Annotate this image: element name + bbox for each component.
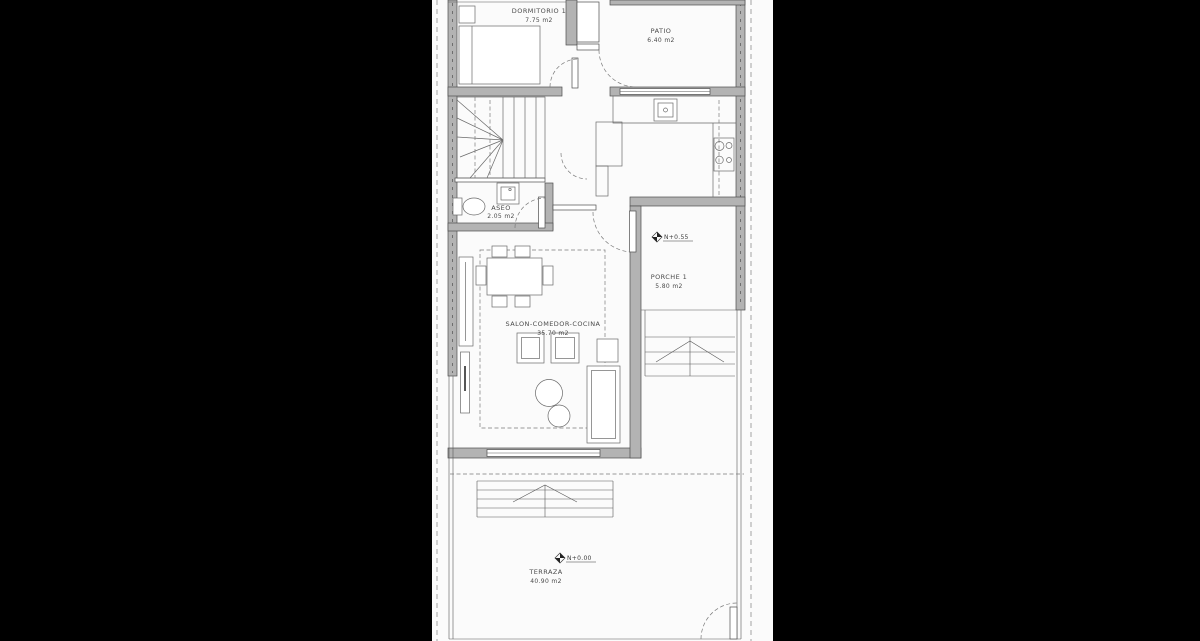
pouf-icon [536, 380, 563, 407]
room-area-dormitorio: 7.75 m2 [525, 17, 552, 24]
screenshot-stage: N+0.55 N+0.00 DORMITORIO 1 7.75 m2 PATIO… [0, 0, 1200, 641]
bed-icon [459, 26, 540, 84]
room-area-salon: 35.70 m2 [537, 330, 569, 337]
room-area-terraza: 40.90 m2 [530, 578, 562, 585]
tall-window-unit [459, 257, 473, 346]
room-label-terraza: TERRAZA [528, 568, 562, 576]
entrance-door-leaf [630, 211, 637, 252]
room-area-porche: 5.80 m2 [655, 283, 682, 290]
pouf-icon [548, 405, 570, 427]
wall-dormitorio-south [448, 87, 562, 96]
level-label: N+0.00 [567, 555, 592, 562]
sink-icon [497, 183, 519, 204]
wall-patio-door-stub [577, 44, 599, 50]
wall-patio-north [610, 0, 745, 5]
level-label: N+0.55 [664, 234, 689, 241]
floorplan-svg: N+0.55 N+0.00 DORMITORIO 1 7.75 m2 PATIO… [0, 0, 1200, 641]
tall-window-unit [461, 352, 470, 413]
room-area-patio: 6.40 m2 [647, 37, 674, 44]
armchair-icon [517, 333, 544, 363]
room-label-aseo: ASEO [491, 204, 511, 212]
aseo-door-leaf [539, 197, 546, 228]
room-area-aseo: 2.05 m2 [487, 213, 514, 220]
room-label-salon: SALON-COMEDOR-COCINA [506, 320, 601, 328]
letterbox-right [773, 0, 1200, 641]
letterbox-left [0, 0, 432, 641]
toilet-icon [453, 198, 485, 215]
sofa-icon [587, 366, 620, 443]
nightstand-icon [459, 6, 475, 23]
side-table-icon [597, 339, 618, 362]
kitchen-sink-icon [654, 99, 677, 121]
room-label-patio: PATIO [651, 27, 672, 35]
wall-kitchen-south [630, 197, 745, 206]
wall-entry-stub [553, 205, 596, 210]
level-marker-porche: N+0.55 [652, 232, 693, 242]
level-marker-terraza: N+0.00 [555, 553, 596, 563]
wall-hall-north [566, 0, 577, 45]
armchair-icon [551, 333, 579, 363]
room-label-porche: PORCHE 1 [651, 273, 688, 281]
room-label-dormitorio: DORMITORIO 1 [512, 7, 566, 15]
closet [577, 2, 599, 42]
gate-leaf [730, 607, 737, 639]
wall-aseo-south [448, 223, 553, 231]
dormitorio-door-leaf [572, 58, 578, 88]
wall-stair-aseo [455, 178, 545, 182]
